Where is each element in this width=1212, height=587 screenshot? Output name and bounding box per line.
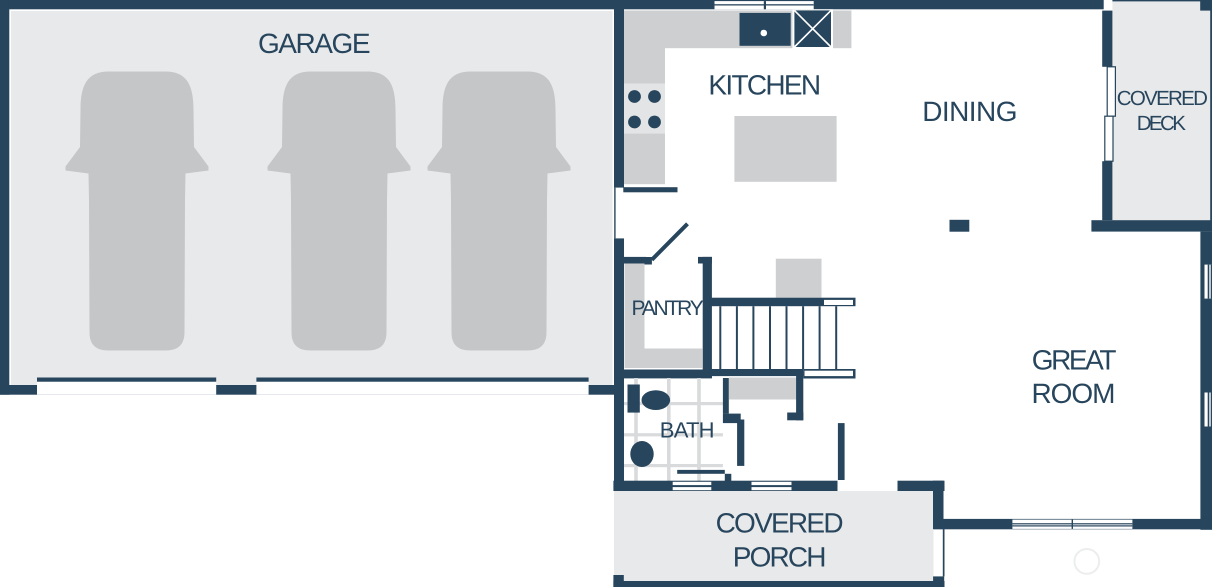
svg-text:DECK: DECK [1137,112,1186,135]
svg-text:ROOM: ROOM [1031,378,1114,409]
svg-text:GREAT: GREAT [1032,344,1117,375]
svg-text:COVERED: COVERED [716,507,843,538]
svg-text:PORCH: PORCH [733,542,825,573]
svg-text:KITCHEN: KITCHEN [708,69,819,100]
svg-text:BATH: BATH [660,418,714,443]
svg-text:COVERED: COVERED [1117,87,1207,110]
svg-text:GARAGE: GARAGE [258,28,370,59]
svg-text:DINING: DINING [922,96,1017,127]
svg-text:PANTRY: PANTRY [631,297,703,320]
